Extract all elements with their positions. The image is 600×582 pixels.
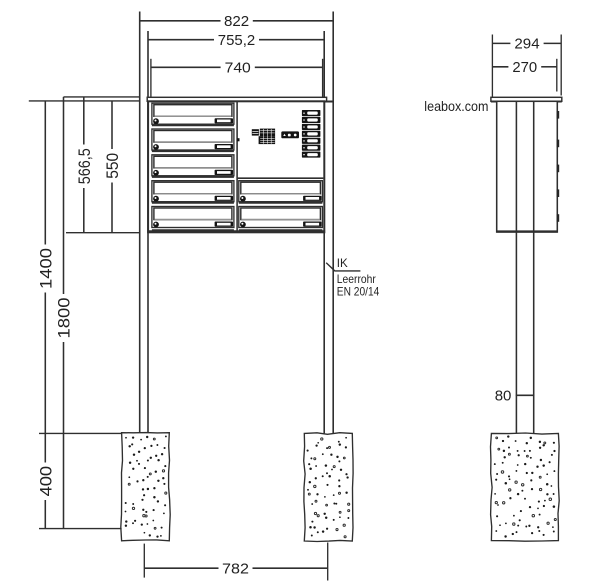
svg-text:755,2: 755,2 — [218, 32, 255, 49]
svg-text:400: 400 — [37, 466, 55, 497]
svg-text:294: 294 — [514, 36, 539, 53]
svg-text:leabox.com: leabox.com — [424, 98, 488, 114]
svg-text:782: 782 — [222, 560, 249, 577]
svg-text:270: 270 — [512, 59, 537, 76]
svg-text:80: 80 — [495, 388, 512, 405]
svg-text:1400: 1400 — [37, 248, 55, 289]
svg-text:822: 822 — [224, 13, 249, 30]
svg-text:740: 740 — [225, 60, 251, 77]
svg-text:1800: 1800 — [56, 298, 74, 339]
svg-text:566,5: 566,5 — [76, 148, 94, 184]
svg-text:550: 550 — [104, 153, 122, 179]
svg-text:EN 20/14: EN 20/14 — [337, 285, 380, 298]
svg-text:Leerrohr: Leerrohr — [337, 273, 376, 286]
svg-text:IK: IK — [337, 257, 348, 270]
